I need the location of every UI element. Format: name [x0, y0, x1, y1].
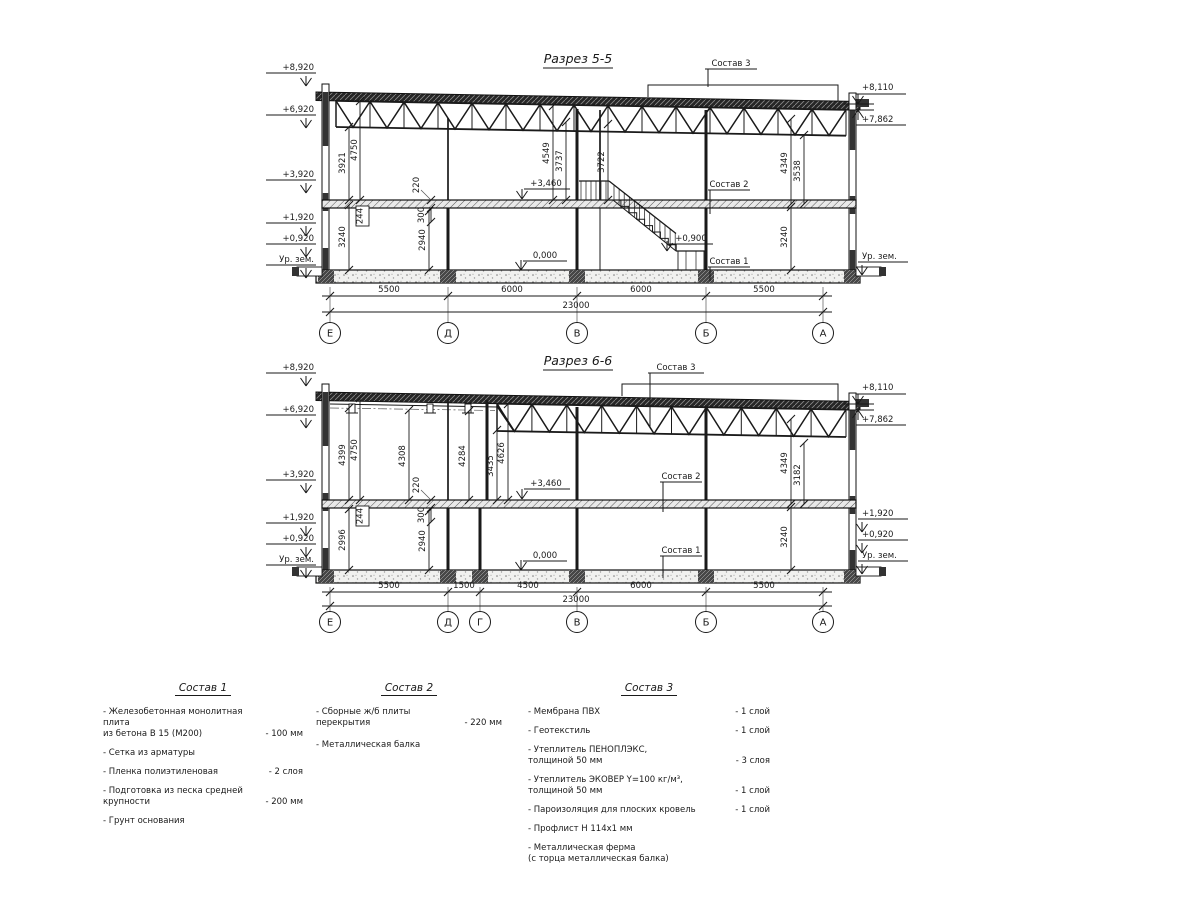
vdim-220: 220 [412, 477, 422, 493]
legend-item: - Утеплитель ЭКОВЕР Y=100 кг/м³, толщино… [528, 775, 735, 797]
axis-D: Д [444, 329, 452, 340]
sostav1-label: Состав 1 [661, 546, 700, 556]
axis-A: А [820, 618, 827, 629]
legend-value: - 1 слой [735, 707, 770, 718]
vdim-4349: 4349 [780, 452, 790, 474]
legend-item: - Сетка из арматуры [103, 748, 303, 759]
elev-1920-right: +1,920 [862, 509, 893, 519]
dim-6000-1: 6000 [501, 285, 523, 295]
vdim-220: 220 [412, 177, 422, 193]
elev-ur-zem-right: Ур. зем. [862, 551, 897, 561]
section-5-5-title: Разрез 5-5 [544, 51, 613, 66]
axis-B: Б [703, 329, 710, 340]
left-elevation-marks: +8,920 +6,920 +3,920 +1,920 +0,920 Ур. з… [266, 363, 316, 578]
axis-E: Е [327, 618, 333, 629]
legend-value: - 1 слой [735, 805, 770, 816]
dim-5500-2: 5500 [753, 581, 775, 591]
axis-A: А [820, 329, 827, 340]
sostav3-label: Состав 3 [711, 59, 750, 69]
elev-6920: +6,920 [283, 405, 314, 415]
level-0000: 0,000 [533, 551, 557, 561]
elev-8920: +8,920 [283, 363, 314, 373]
legend-value: - 220 мм [464, 718, 502, 729]
vdim-3538: 3538 [793, 160, 803, 182]
legend-title-3: Состав 3 [621, 682, 677, 696]
dim-6000: 6000 [630, 581, 652, 591]
legend-item: - Железобетонная монолитная плита из бет… [103, 707, 265, 740]
vdim-244: 244 [356, 508, 366, 524]
axis-B: Б [703, 618, 710, 629]
section-6-6-title: Разрез 6-6 [544, 353, 613, 368]
dim-4500: 4500 [517, 581, 539, 591]
legend-item: - Металлическая балка [316, 740, 502, 751]
roof [316, 92, 869, 110]
elev-0920: +0,920 [283, 234, 314, 244]
sostav3-label: Состав 3 [656, 363, 695, 373]
dim-6000-2: 6000 [630, 285, 652, 295]
dim-5500-2: 5500 [753, 285, 775, 295]
elev-0920-right: +0,920 [862, 530, 893, 540]
vdim-244: 244 [356, 208, 366, 224]
elev-7862: +7,862 [862, 415, 893, 425]
vdim-2940: 2940 [418, 229, 428, 251]
vdim-2940: 2940 [418, 530, 428, 552]
elev-ur-zem: Ур. зем. [279, 255, 314, 265]
vdim-4349: 4349 [780, 152, 790, 174]
vdim-3722: 3722 [597, 151, 607, 173]
vdim-4750: 4750 [350, 139, 360, 161]
vdim-3435: 3435 [486, 455, 496, 477]
elev-1920: +1,920 [283, 513, 314, 523]
legend-item: - Профлист Н 114х1 мм [528, 824, 770, 835]
legend-item: - Сборные ж/б плиты перекрытия [316, 707, 464, 729]
legend-item: - Пароизоляция для плоских кровель [528, 805, 735, 816]
elev-0920: +0,920 [283, 534, 314, 544]
axis-G: Г [477, 618, 483, 629]
legend-item: - Грунт основания [103, 816, 303, 827]
vdim-3240-right: 3240 [780, 226, 790, 248]
section-5-5: Разрез 5-5 [266, 51, 908, 344]
elev-ur-zem-right: Ур. зем. [862, 252, 897, 262]
vertical-dimensions: 4399 4750 4308 4284 3435 4626 2996 2940 … [338, 394, 808, 574]
elev-1920: +1,920 [283, 213, 314, 223]
vdim-3240-left: 3240 [338, 226, 348, 248]
vdim-4549: 4549 [542, 142, 552, 164]
elev-8110: +8,110 [862, 383, 893, 393]
axis-circles: Е Д Г В Б А [320, 612, 834, 633]
axis-D: Д [444, 618, 452, 629]
elev-3920: +3,920 [283, 470, 314, 480]
elev-7862: +7,862 [862, 115, 893, 125]
elev-8920: +8,920 [283, 63, 314, 73]
staircase [579, 181, 706, 270]
legend-item: - Утеплитель ПЕНОПЛЭКС, толщиной 50 мм [528, 745, 736, 767]
vdim-3240: 3240 [780, 526, 790, 548]
legend-sostav-3: Состав 3 - Мембрана ПВХ- 1 слой - Геотек… [528, 676, 770, 873]
vdim-4399: 4399 [338, 444, 348, 466]
level-marks: +3,460 0,000 [516, 479, 571, 570]
floor-slab [322, 200, 856, 208]
dim-5500-1: 5500 [378, 581, 400, 591]
vdim-3182: 3182 [793, 464, 803, 486]
sostav-labels: Состав 3 Состав 2 Состав 1 [622, 363, 838, 578]
sections-drawing: Разрез 5-5 [0, 0, 1200, 665]
columns [448, 399, 706, 570]
vdim-3737: 3737 [555, 150, 565, 172]
legend-value: - 3 слоя [736, 756, 770, 767]
dim-total-23000: 23000 [562, 301, 589, 311]
legend-title-2: Состав 2 [381, 682, 437, 696]
floor-slab [322, 500, 856, 508]
vdim-300: 300 [417, 507, 427, 523]
axis-V: В [574, 618, 581, 629]
elev-8110: +8,110 [862, 83, 893, 93]
legend-item: - Мембрана ПВХ [528, 707, 735, 718]
ground-slab [292, 267, 886, 283]
left-elevation-marks: +8,920 +6,920 +3,920 +1,920 +0,920 Ур. з… [266, 63, 316, 278]
sostav2-label: Состав 2 [709, 180, 748, 190]
legend-item: - Подготовка из песка средней крупности [103, 786, 265, 808]
roof-truss [497, 404, 846, 437]
legend-sostav-2: Состав 2 - Сборные ж/б плиты перекрытия-… [316, 676, 502, 759]
dim-1500: 1500 [453, 581, 475, 591]
dim-5500-1: 5500 [378, 285, 400, 295]
legend-item: - Металлическая ферма (с торца металличе… [528, 843, 770, 865]
elev-3920: +3,920 [283, 170, 314, 180]
vdim-300: 300 [417, 207, 427, 223]
legend-value: - 2 слоя [269, 767, 303, 778]
dimension-rows: 5500 6000 6000 5500 23000 [322, 285, 832, 323]
vdim-4750: 4750 [350, 439, 360, 461]
legend-item: - Пленка полиэтиленовая [103, 767, 269, 778]
elev-ur-zem: Ур. зем. [279, 555, 314, 565]
legend-value: - 100 мм [265, 729, 303, 740]
legend-value: - 1 слой [735, 786, 770, 797]
vdim-4626: 4626 [497, 442, 507, 464]
vdim-4284: 4284 [458, 445, 468, 467]
legend-value: - 1 слой [735, 726, 770, 737]
section-6-6: Разрез 6-6 [266, 353, 908, 633]
level-0000: 0,000 [533, 251, 557, 261]
dim-total-23000: 23000 [562, 595, 589, 605]
level-0900: +0,900 [675, 234, 706, 244]
elev-6920: +6,920 [283, 105, 314, 115]
level-3460: +3,460 [530, 479, 561, 489]
axis-V: В [574, 329, 581, 340]
vdim-3921: 3921 [338, 152, 348, 174]
sostav1-label: Состав 1 [709, 257, 748, 267]
legend-sostav-1: Состав 1 - Железобетонная монолитная пли… [103, 676, 303, 835]
dimension-rows: 5500 1500 4500 6000 5500 23000 [322, 581, 832, 612]
vdim-4308: 4308 [398, 445, 408, 467]
axis-circles: Е Д В Б А [320, 323, 834, 344]
legend-item: - Геотекстиль [528, 726, 735, 737]
axis-E: Е [327, 329, 333, 340]
legend-title-1: Состав 1 [175, 682, 231, 696]
vdim-2996: 2996 [338, 529, 348, 551]
level-3460: +3,460 [530, 179, 561, 189]
sostav2-label: Состав 2 [661, 472, 700, 482]
legend-value: - 200 мм [265, 797, 303, 808]
